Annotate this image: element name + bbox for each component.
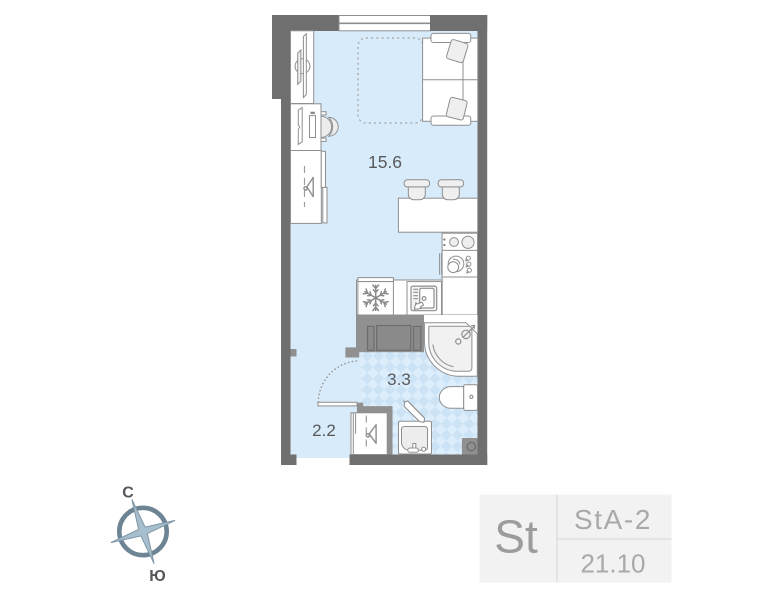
svg-text:15.6: 15.6 bbox=[368, 152, 402, 172]
svg-text:21.10: 21.10 bbox=[580, 549, 645, 579]
svg-text:Ю: Ю bbox=[149, 568, 166, 585]
svg-text:StA-2: StA-2 bbox=[574, 504, 652, 535]
svg-text:2.2: 2.2 bbox=[312, 421, 336, 440]
svg-text:3.3: 3.3 bbox=[387, 370, 411, 389]
svg-text:С: С bbox=[122, 485, 134, 502]
svg-text:St: St bbox=[494, 511, 538, 563]
